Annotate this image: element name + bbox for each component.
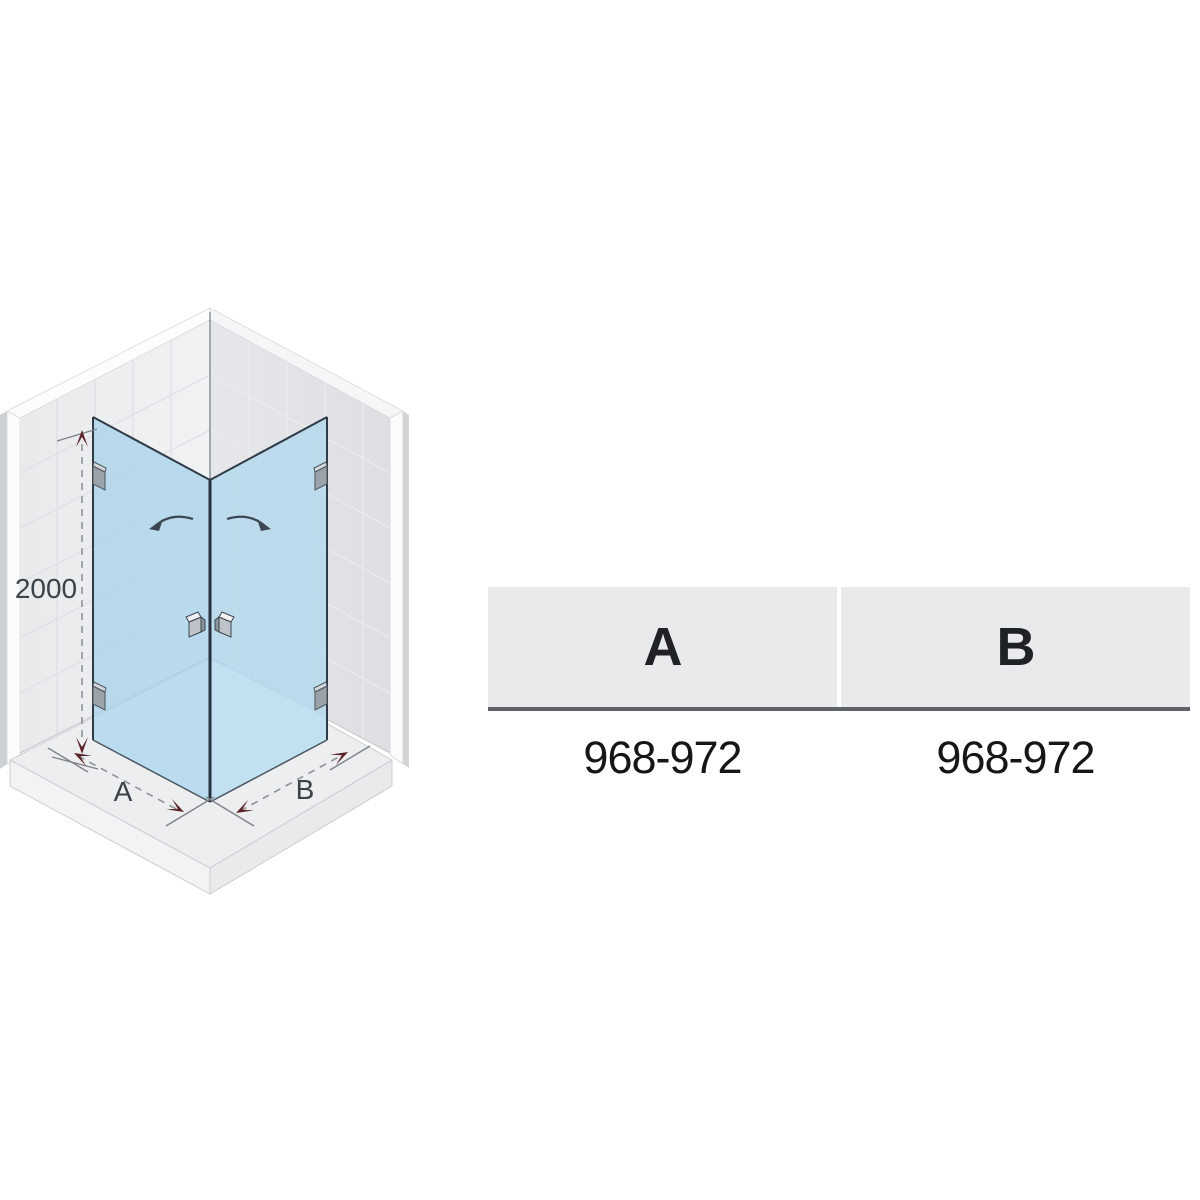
column-header-a: A bbox=[488, 587, 837, 707]
height-dimension-label: 2000 bbox=[15, 573, 77, 604]
width-b-label: B bbox=[296, 774, 315, 805]
table-value-row: 968-972 968-972 bbox=[488, 728, 1190, 788]
width-a-label: A bbox=[114, 776, 133, 807]
page: 2000 A B A B 968-972 968-972 bbox=[0, 0, 1200, 1200]
table-header-row: A B bbox=[488, 587, 1190, 711]
column-header-b: B bbox=[841, 587, 1190, 707]
right-glass-door bbox=[210, 417, 327, 802]
column-value-a: 968-972 bbox=[488, 728, 837, 788]
column-value-b: 968-972 bbox=[841, 728, 1190, 788]
shower-enclosure-diagram: 2000 A B bbox=[0, 0, 440, 960]
left-glass-door bbox=[93, 417, 210, 802]
dimension-table: A B 968-972 968-972 bbox=[488, 587, 1190, 788]
